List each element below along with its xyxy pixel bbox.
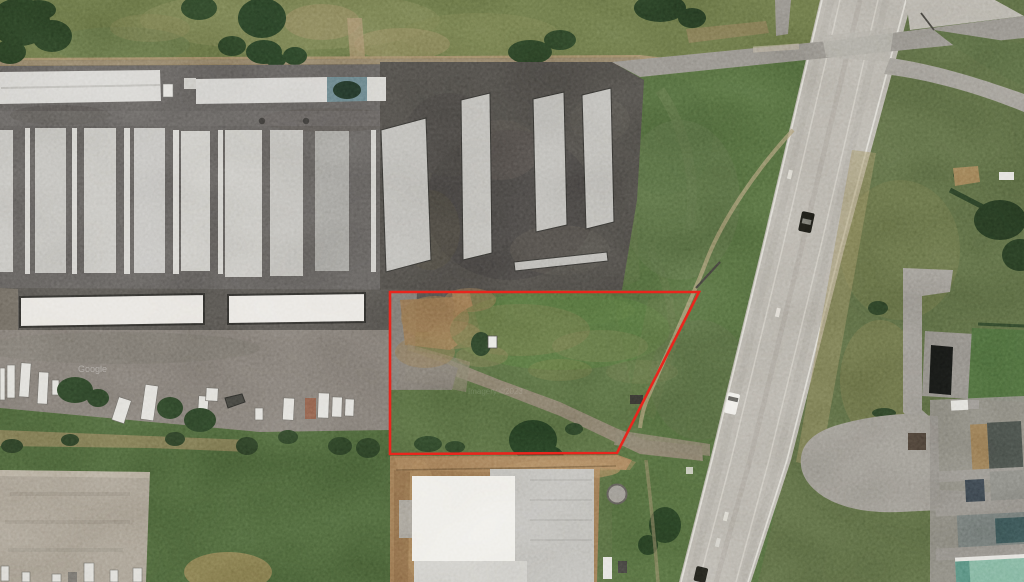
svg-text:Google: Google [78,364,107,374]
svg-text:Imagery ©2023: Imagery ©2023 [468,387,523,396]
